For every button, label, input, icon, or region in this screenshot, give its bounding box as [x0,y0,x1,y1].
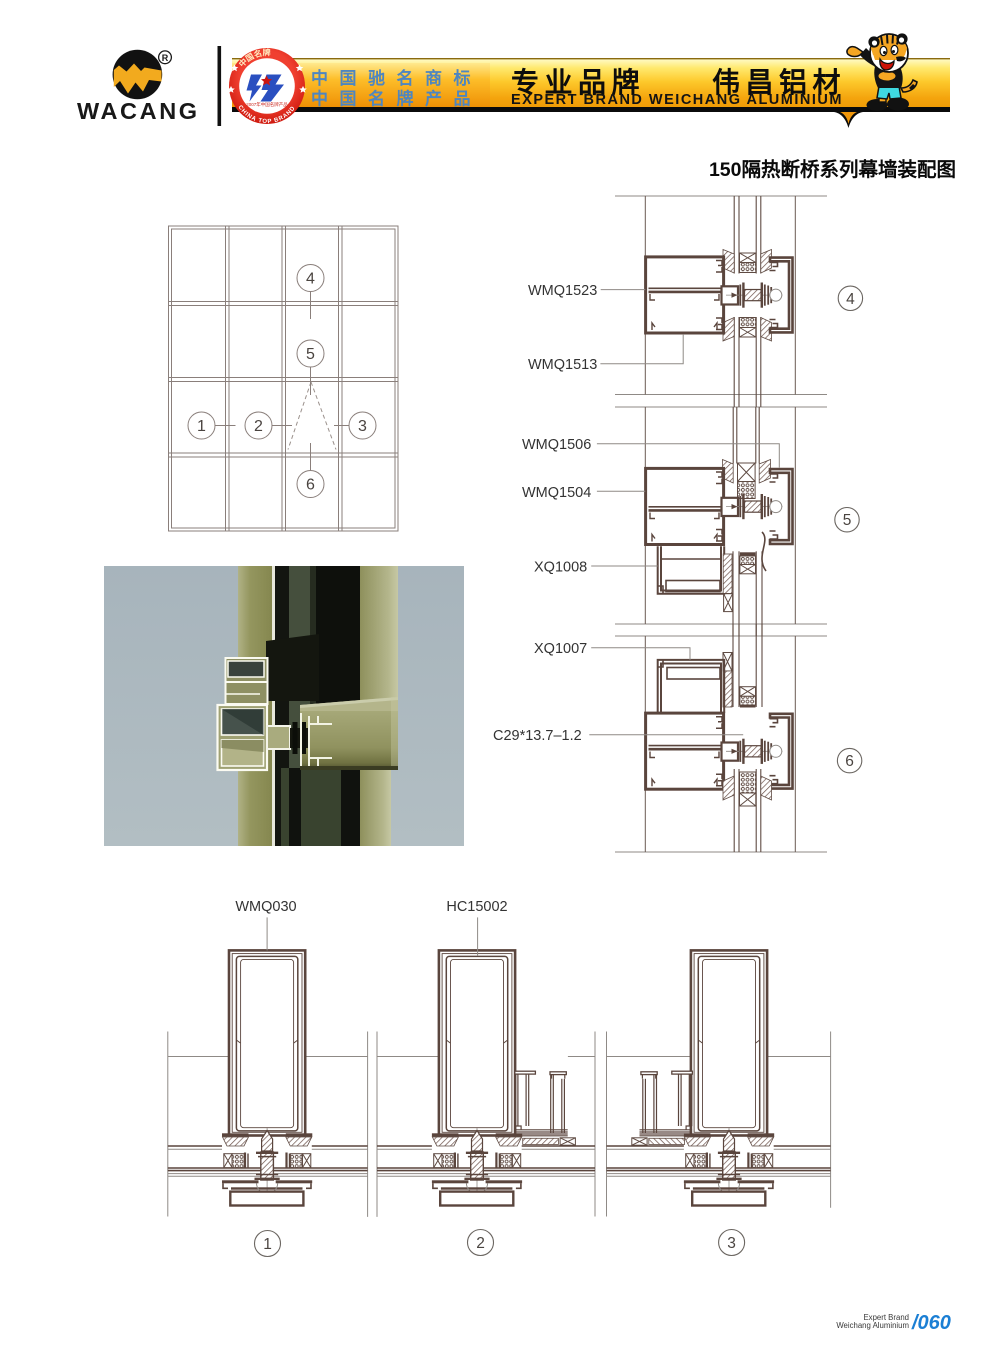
svg-text:中国名牌产品: 中国名牌产品 [311,89,482,109]
svg-text:/060: /060 [911,1312,951,1334]
svg-text:4: 4 [306,271,315,288]
svg-text:HC15002: HC15002 [446,899,507,915]
svg-text:XQ1008: XQ1008 [534,560,587,576]
svg-text:2: 2 [254,418,263,435]
svg-text:5: 5 [306,346,315,363]
svg-text:XQ1007: XQ1007 [534,641,587,657]
svg-text:6: 6 [306,477,315,494]
svg-text:5: 5 [843,512,852,529]
svg-text:3: 3 [358,418,367,435]
svg-text:1: 1 [263,1236,272,1253]
svg-text:2: 2 [476,1235,485,1252]
svg-text:1: 1 [197,418,206,435]
svg-text:WMQ1523: WMQ1523 [528,283,597,299]
svg-text:4: 4 [846,291,855,308]
svg-text:6: 6 [845,753,854,770]
svg-text:R: R [162,53,169,63]
svg-text:WMQ030: WMQ030 [235,899,296,915]
svg-text:WMQ1504: WMQ1504 [522,485,591,501]
svg-text:Weichang Aluminium: Weichang Aluminium [836,1321,909,1330]
svg-text:C29*13.7–1.2: C29*13.7–1.2 [493,728,582,744]
svg-text:WACANG: WACANG [77,98,200,124]
svg-text:3: 3 [727,1235,736,1252]
svg-text:中国驰名商标: 中国驰名商标 [311,68,482,88]
svg-text:WMQ1513: WMQ1513 [528,357,597,373]
svg-text:WMQ1506: WMQ1506 [522,437,591,453]
svg-text:150隔热断桥系列幕墙装配图: 150隔热断桥系列幕墙装配图 [709,158,956,181]
svg-text:2007年中国名牌产品: 2007年中国名牌产品 [246,101,288,108]
svg-text:EXPERT BRAND WEICHANG ALUMINIU: EXPERT BRAND WEICHANG ALUMINIUM [511,92,843,108]
